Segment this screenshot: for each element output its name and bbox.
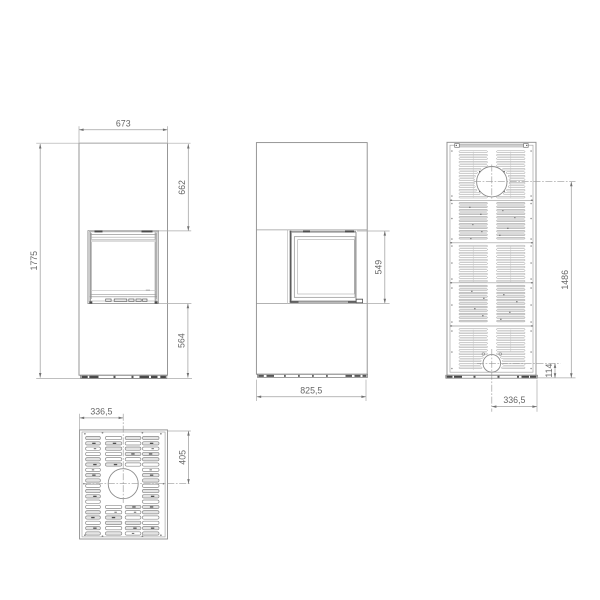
svg-text:1486: 1486 <box>560 270 570 290</box>
svg-text:336,5: 336,5 <box>90 407 112 417</box>
svg-text:662: 662 <box>177 180 187 195</box>
svg-text:549: 549 <box>374 260 384 275</box>
svg-text:114: 114 <box>544 363 554 377</box>
svg-text:1775: 1775 <box>29 251 39 271</box>
svg-text:336,5: 336,5 <box>503 395 525 405</box>
svg-text:673: 673 <box>116 118 131 128</box>
svg-text:405: 405 <box>177 450 187 465</box>
svg-text:825,5: 825,5 <box>300 385 322 395</box>
svg-text:564: 564 <box>177 333 187 348</box>
